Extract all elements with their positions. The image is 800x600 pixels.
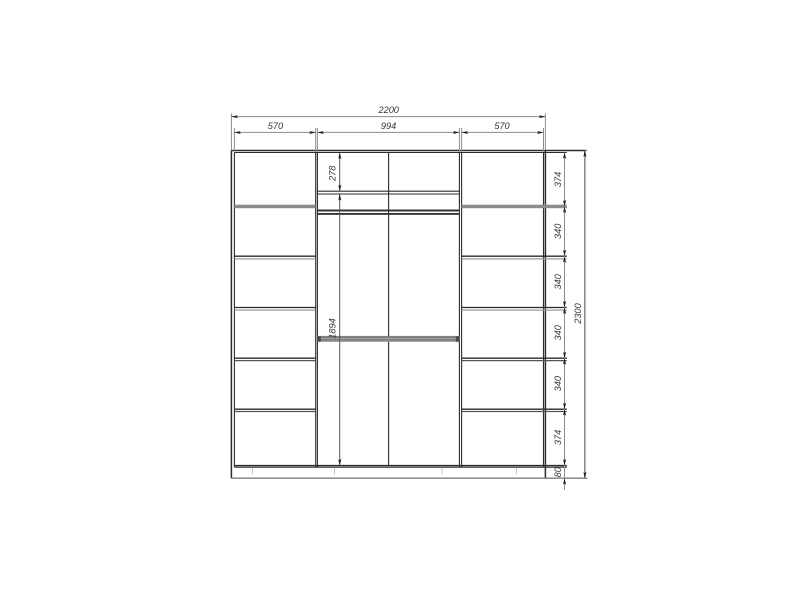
svg-text:374: 374 [553,430,563,445]
svg-text:2300: 2300 [573,302,583,324]
svg-text:340: 340 [553,273,563,289]
svg-text:80: 80 [553,466,563,477]
svg-text:570: 570 [268,121,284,131]
svg-text:340: 340 [553,375,563,391]
svg-text:1894: 1894 [328,318,338,338]
svg-text:340: 340 [553,324,563,340]
svg-text:278: 278 [328,165,338,182]
svg-text:374: 374 [553,172,563,187]
svg-text:570: 570 [494,121,510,131]
svg-text:340: 340 [553,223,563,239]
svg-text:994: 994 [381,121,396,131]
svg-text:2200: 2200 [377,105,399,115]
